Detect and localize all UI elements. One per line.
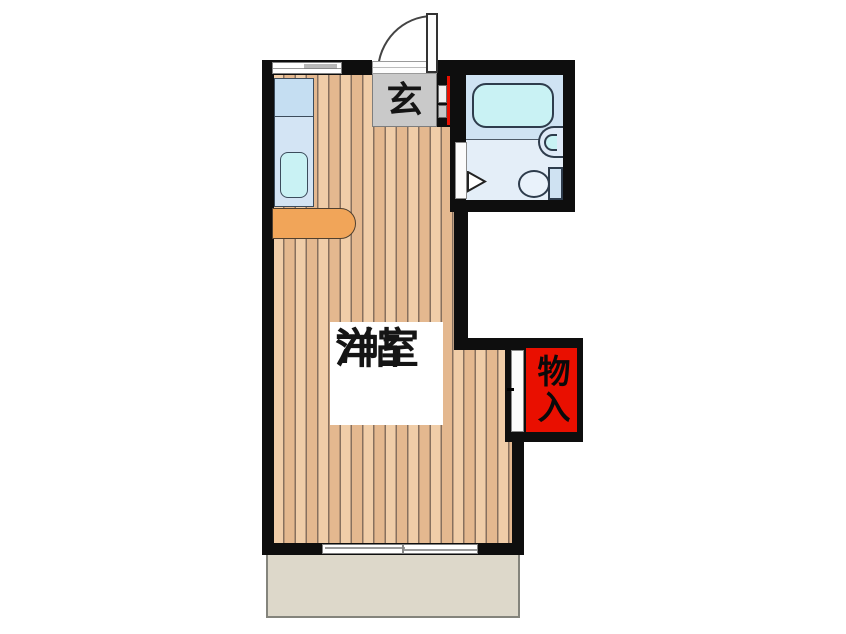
- shoe-cabinet-icon: [438, 85, 447, 103]
- wall-mid-right: [454, 205, 468, 350]
- toilet-tank: [548, 167, 563, 200]
- window-rail: [403, 549, 477, 551]
- room-size: 7帖: [335, 323, 400, 374]
- bathtub-icon: [472, 83, 554, 128]
- storage-label: 物入: [535, 354, 568, 426]
- sliding-window-icon: [272, 62, 342, 74]
- door-handle-tick: [507, 388, 514, 391]
- entrance-area: 玄: [372, 72, 437, 127]
- door-leaf: [426, 13, 438, 73]
- wall-right-lower: [512, 436, 524, 555]
- sliding-door-icon: [511, 350, 524, 432]
- wall-left: [262, 60, 274, 555]
- entrance-label: 玄: [386, 82, 422, 118]
- wall-top-right: [437, 60, 575, 75]
- floorplan-canvas: 玄 物入 洋室 7帖: [0, 0, 846, 634]
- kitchen-sink-icon: [280, 152, 308, 198]
- washbasin-bowl: [544, 134, 557, 151]
- shoe-cabinet-icon: [438, 105, 447, 118]
- room-label: 洋室 7帖: [330, 322, 443, 425]
- window-pane: [304, 64, 337, 69]
- storage-closet: 物入: [526, 348, 577, 432]
- bathroom-door: [455, 142, 467, 199]
- sliding-window-icon: [322, 544, 478, 554]
- counter-icon: [272, 208, 356, 239]
- toilet-icon: [518, 170, 550, 198]
- window-rail: [325, 547, 405, 549]
- window-frame-tick: [402, 545, 404, 553]
- door-swing-triangle-icon: [467, 171, 487, 193]
- balcony: [266, 551, 520, 618]
- kitchen-counter-top: [274, 78, 314, 118]
